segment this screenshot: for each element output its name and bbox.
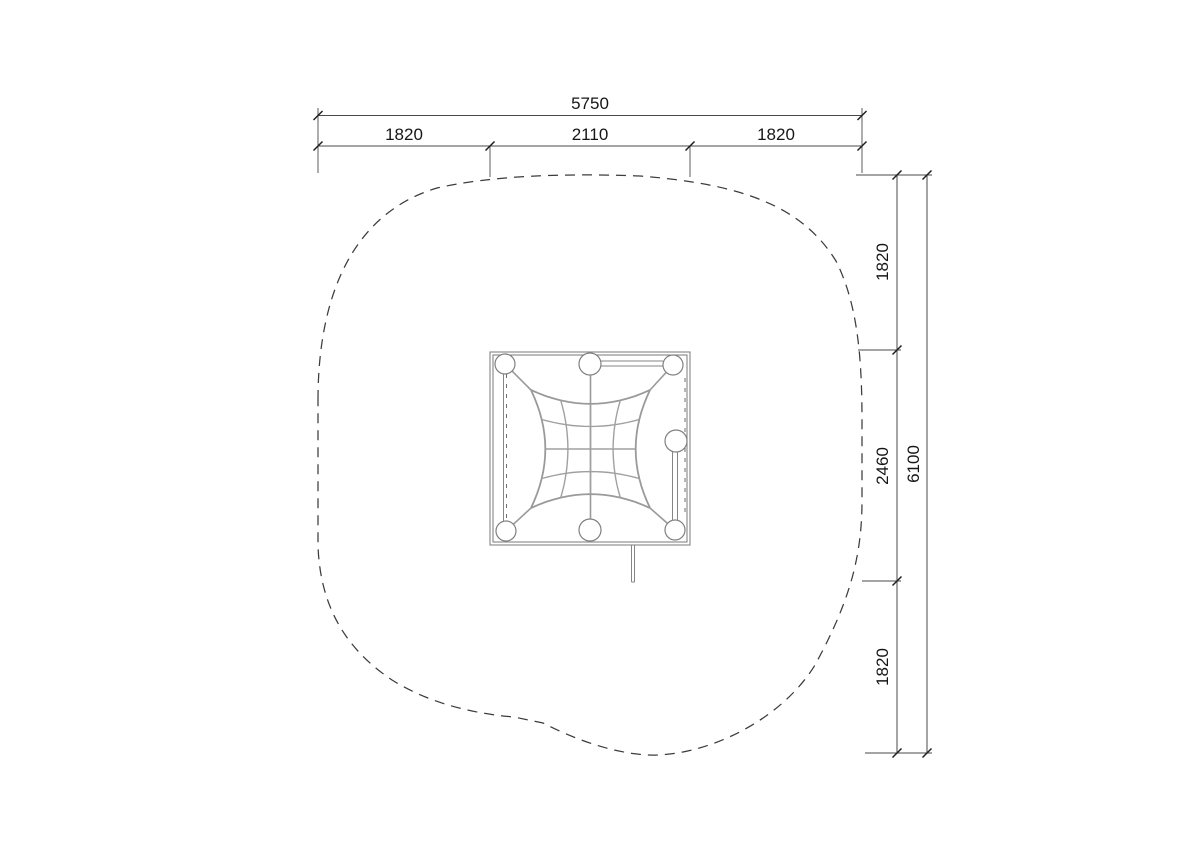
dim-label-bottom-segment: 1820 <box>873 648 892 686</box>
dim-label-right-segment: 1820 <box>757 125 795 144</box>
plan-view-drawing: 5750 1820 2110 1820 1820 2460 1820 6100 <box>0 0 1191 842</box>
post-bottom-middle <box>579 519 601 541</box>
post-top-right <box>663 355 683 375</box>
post-bottom-left <box>496 521 516 541</box>
dimension-top: 5750 1820 2110 1820 <box>314 94 867 177</box>
net-rope-vertical <box>531 390 545 508</box>
dim-label-total-width: 5750 <box>571 94 609 113</box>
dim-label-middle-segment: 2110 <box>572 125 609 144</box>
drawing-canvas: 5750 1820 2110 1820 1820 2460 1820 6100 <box>0 0 1191 842</box>
climbing-net <box>531 390 650 508</box>
dimension-right: 1820 2460 1820 6100 <box>856 171 932 758</box>
dim-label-total-height: 6100 <box>904 445 923 483</box>
dim-label-top-segment: 1820 <box>873 243 892 281</box>
net-rope-vertical <box>636 390 650 508</box>
dim-label-middle-segment: 2460 <box>873 447 892 485</box>
post-mid-right <box>665 430 687 452</box>
post-bottom-right <box>665 520 685 540</box>
dim-label-left-segment: 1820 <box>385 125 423 144</box>
post-top-left <box>495 354 515 374</box>
post-top-middle <box>579 353 601 375</box>
climbing-net-structure <box>490 352 690 582</box>
